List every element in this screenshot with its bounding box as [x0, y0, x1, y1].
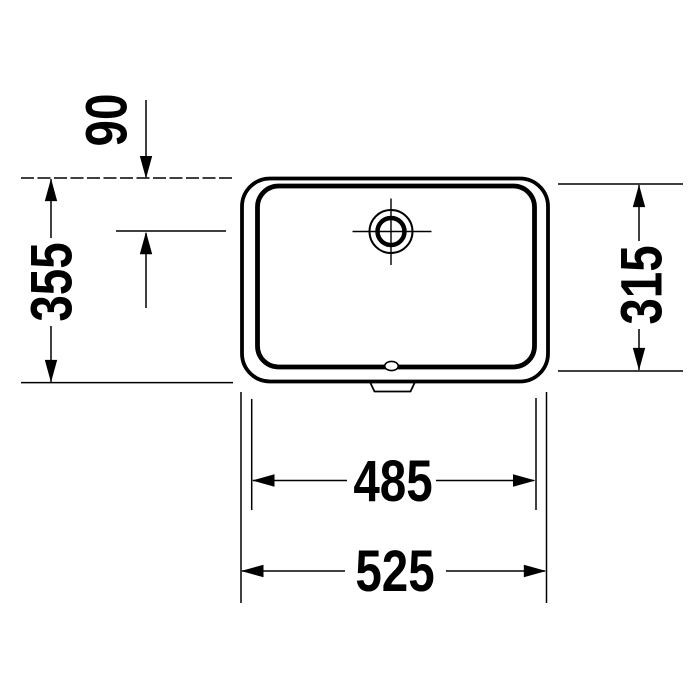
- technical-drawing: 90 355 315 485: [0, 0, 700, 700]
- arrow-down-icon: [45, 360, 57, 383]
- arrow-left-icon: [252, 474, 275, 486]
- dimension-label-overall-width: 525: [355, 540, 434, 605]
- dimension-label-overall-depth: 355: [20, 242, 85, 321]
- dimension-485: 485: [252, 398, 536, 514]
- dimension-label-basin-depth: 315: [610, 245, 675, 324]
- dimension-label-drain-offset: 90: [75, 94, 140, 147]
- arrow-down-icon: [633, 348, 645, 371]
- drain-slot-icon: [385, 361, 399, 370]
- arrow-right-icon: [513, 474, 536, 486]
- dimension-315: 315: [558, 184, 683, 371]
- arrow-right-icon: [524, 565, 547, 577]
- arrow-left-icon: [241, 565, 264, 577]
- dimension-355: 355: [20, 179, 233, 383]
- arrow-up-icon: [140, 232, 152, 255]
- basin-outer-outline: [242, 179, 548, 382]
- arrow-up-icon: [45, 179, 57, 202]
- arrow-down-icon: [140, 156, 152, 179]
- arrow-up-icon: [633, 185, 645, 208]
- drawing-canvas: 90 355 315 485: [0, 0, 700, 700]
- dimension-label-basin-width: 485: [353, 450, 432, 515]
